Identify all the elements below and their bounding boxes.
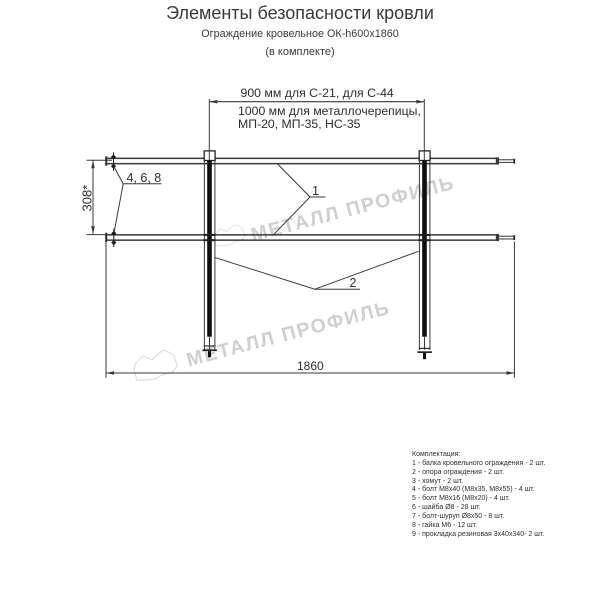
svg-text:МЕТАЛЛ ПРОФИЛЬ: МЕТАЛЛ ПРОФИЛЬ bbox=[184, 297, 392, 372]
svg-text:308*: 308* bbox=[79, 185, 94, 212]
